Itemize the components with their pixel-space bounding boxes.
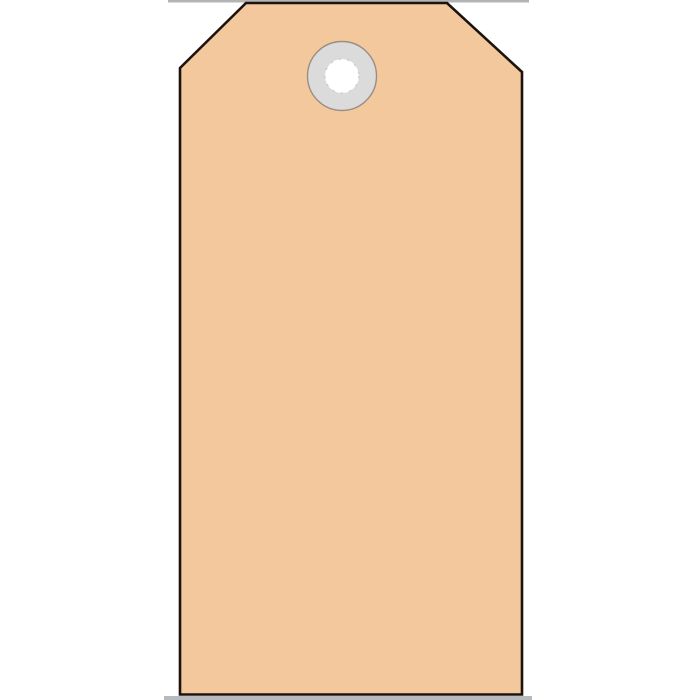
eyelet-hole	[325, 59, 359, 93]
scan-edge-strip-bottom	[164, 696, 532, 700]
tag-product-image	[0, 0, 700, 700]
shipping-tag-illustration	[0, 0, 700, 700]
